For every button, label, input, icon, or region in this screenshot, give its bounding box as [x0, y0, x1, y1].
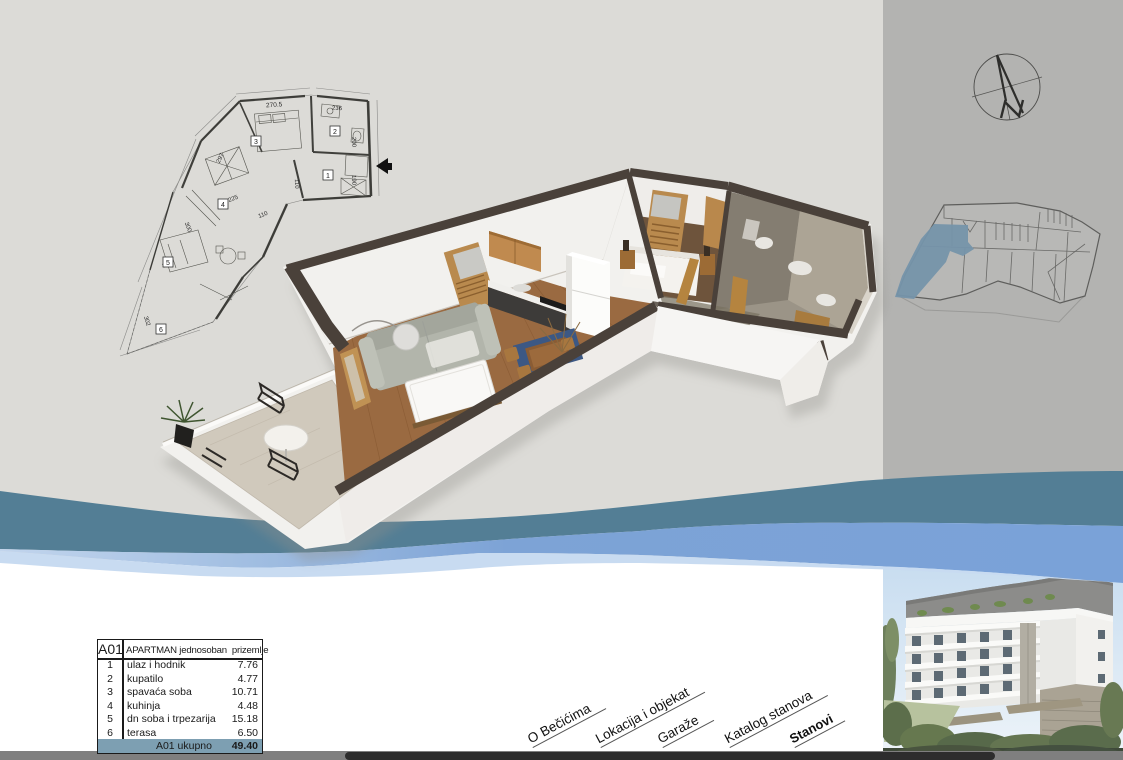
- svg-text:6: 6: [159, 327, 163, 334]
- svg-text:4: 4: [221, 202, 225, 209]
- svg-text:270.5: 270.5: [266, 101, 283, 109]
- svg-text:2: 2: [333, 129, 337, 136]
- svg-text:200: 200: [350, 137, 356, 148]
- svg-text:190: 190: [350, 175, 356, 186]
- svg-text:236: 236: [332, 106, 343, 113]
- svg-text:3: 3: [254, 139, 258, 146]
- svg-text:1: 1: [326, 173, 330, 180]
- svg-text:110: 110: [293, 179, 299, 189]
- svg-text:5: 5: [166, 260, 170, 267]
